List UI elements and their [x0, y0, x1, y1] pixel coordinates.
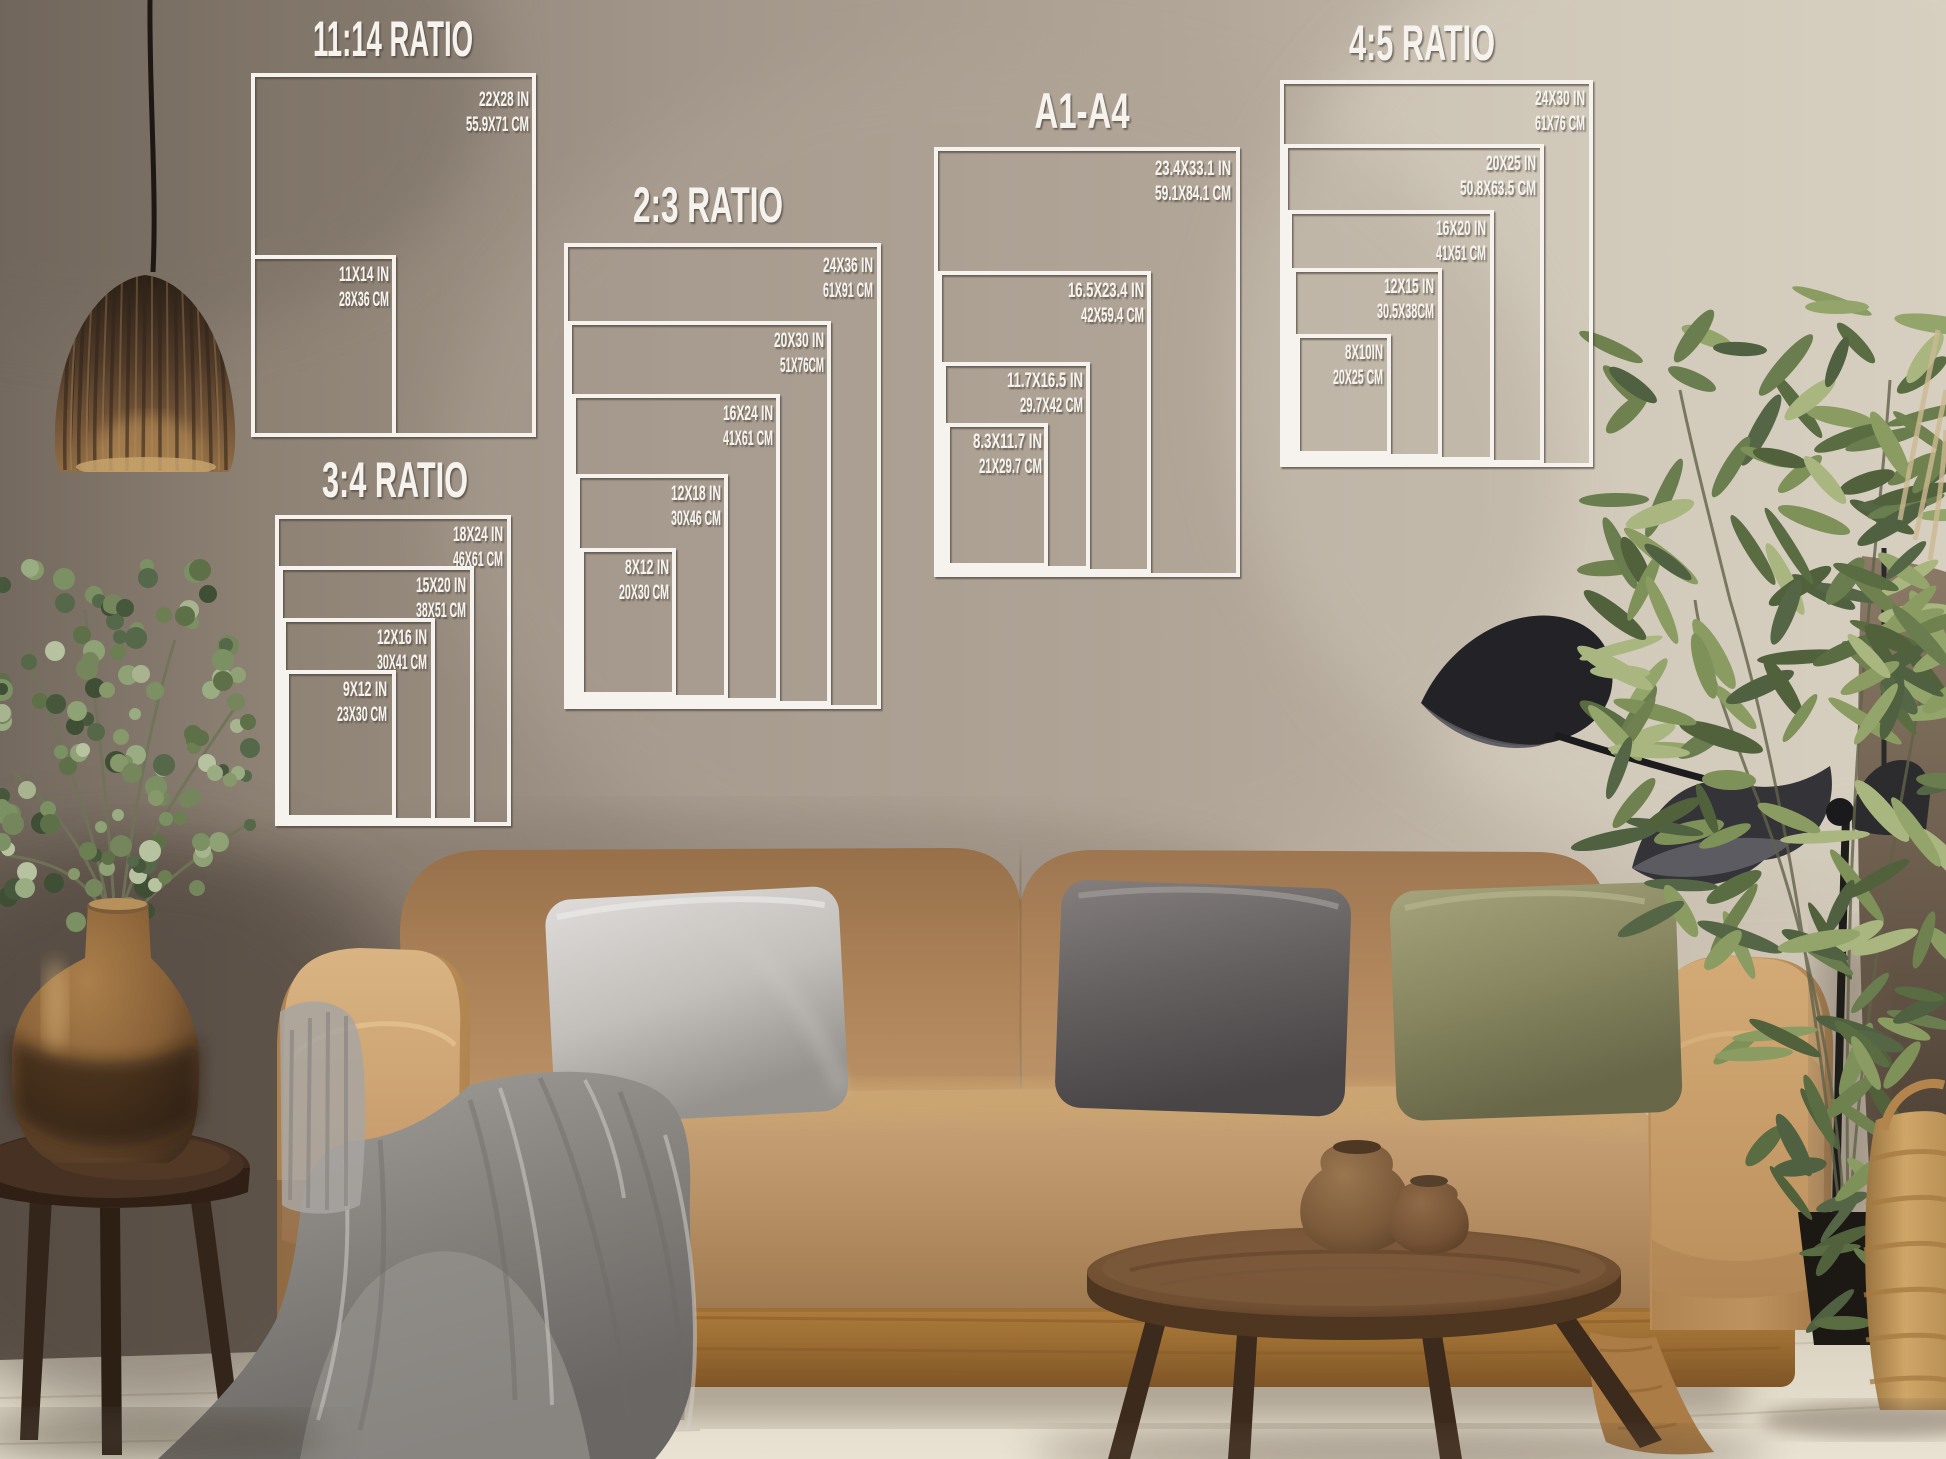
- svg-text:38X51 CM: 38X51 CM: [416, 599, 466, 622]
- svg-text:18X24 IN: 18X24 IN: [453, 523, 503, 546]
- svg-text:41X61 CM: 41X61 CM: [723, 427, 773, 450]
- svg-text:30X46 CM: 30X46 CM: [671, 507, 721, 530]
- svg-text:21X29.7 CM: 21X29.7 CM: [979, 455, 1042, 478]
- svg-text:46X61 CM: 46X61 CM: [453, 548, 503, 571]
- svg-text:2:3 RATIO: 2:3 RATIO: [633, 177, 783, 233]
- svg-text:4:5 RATIO: 4:5 RATIO: [1349, 15, 1495, 71]
- svg-text:12X18 IN: 12X18 IN: [671, 482, 721, 505]
- svg-text:11:14 RATIO: 11:14 RATIO: [313, 11, 473, 67]
- svg-text:50.8X63.5 CM: 50.8X63.5 CM: [1460, 177, 1536, 200]
- svg-text:30.5X38CM: 30.5X38CM: [1377, 300, 1434, 323]
- svg-text:30X41 CM: 30X41 CM: [377, 651, 427, 674]
- svg-text:61X76 CM: 61X76 CM: [1535, 112, 1585, 135]
- svg-text:8X10IN: 8X10IN: [1345, 341, 1383, 364]
- svg-text:59.1X84.1 CM: 59.1X84.1 CM: [1155, 182, 1231, 205]
- svg-text:29.7X42 CM: 29.7X42 CM: [1020, 394, 1083, 417]
- svg-text:20X30 IN: 20X30 IN: [774, 329, 824, 352]
- svg-text:23.4X33.1 IN: 23.4X33.1 IN: [1155, 157, 1231, 180]
- svg-text:61X91 CM: 61X91 CM: [823, 279, 873, 302]
- svg-text:16.5X23.4 IN: 16.5X23.4 IN: [1068, 279, 1144, 302]
- svg-text:12X15 IN: 12X15 IN: [1384, 275, 1434, 298]
- svg-text:15X20 IN: 15X20 IN: [416, 574, 466, 597]
- svg-text:9X12 IN: 9X12 IN: [343, 678, 387, 701]
- svg-text:23X30 CM: 23X30 CM: [337, 703, 387, 726]
- svg-text:11.7X16.5 IN: 11.7X16.5 IN: [1007, 369, 1083, 392]
- svg-text:16X20 IN: 16X20 IN: [1436, 217, 1486, 240]
- svg-text:20X25 IN: 20X25 IN: [1486, 152, 1536, 175]
- svg-text:20X25 CM: 20X25 CM: [1333, 366, 1383, 389]
- svg-text:A1-A4: A1-A4: [1035, 83, 1130, 139]
- svg-text:28X36 CM: 28X36 CM: [339, 288, 389, 311]
- svg-text:24X30 IN: 24X30 IN: [1535, 87, 1585, 110]
- svg-text:16X24 IN: 16X24 IN: [723, 402, 773, 425]
- svg-text:51X76CM: 51X76CM: [780, 354, 824, 377]
- svg-text:41X51 CM: 41X51 CM: [1436, 242, 1486, 265]
- svg-text:3:4 RATIO: 3:4 RATIO: [322, 452, 468, 508]
- svg-text:12X16 IN: 12X16 IN: [377, 626, 427, 649]
- svg-text:20X30 CM: 20X30 CM: [619, 581, 669, 604]
- svg-text:22X28 IN: 22X28 IN: [479, 88, 529, 111]
- svg-text:8X12 IN: 8X12 IN: [625, 556, 669, 579]
- svg-text:24X36 IN: 24X36 IN: [823, 254, 873, 277]
- svg-text:8.3X11.7 IN: 8.3X11.7 IN: [973, 430, 1042, 453]
- svg-text:42X59.4 CM: 42X59.4 CM: [1081, 304, 1144, 327]
- svg-text:11X14 IN: 11X14 IN: [339, 263, 389, 286]
- svg-text:55.9X71 CM: 55.9X71 CM: [466, 113, 529, 136]
